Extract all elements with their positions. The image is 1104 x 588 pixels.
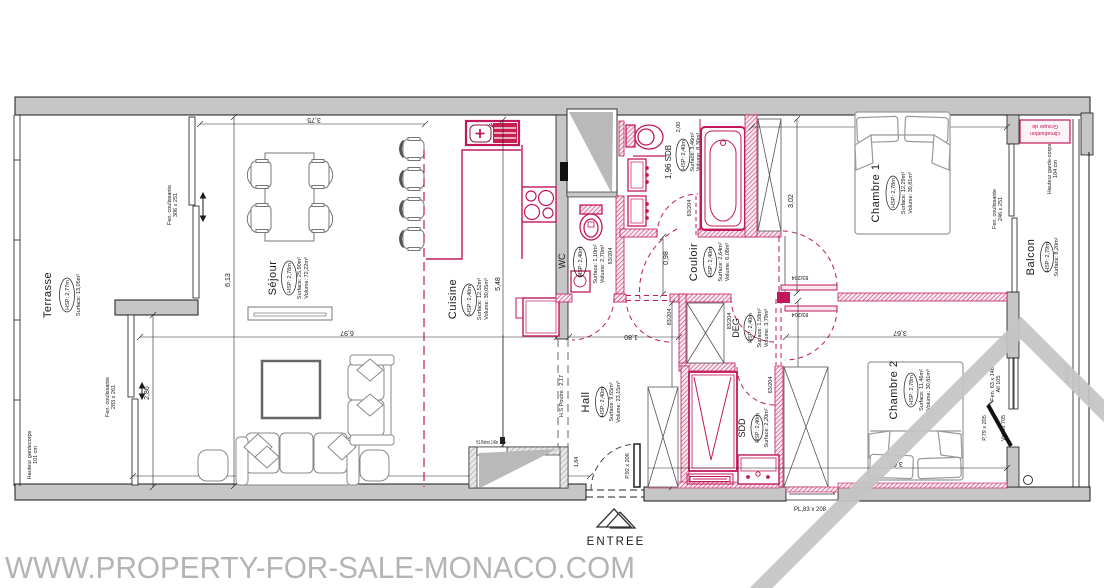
svg-text:3,75: 3,75 xyxy=(307,116,321,123)
svg-text:Groupe de: Groupe de xyxy=(1032,123,1058,129)
svg-text:P,79 x 205: P,79 x 205 xyxy=(982,415,988,441)
svg-text:Videm 705: Videm 705 xyxy=(1001,415,1007,441)
svg-text:Surface: 8,20m²: Surface: 8,20m² xyxy=(1054,237,1060,276)
svg-text:83/204: 83/204 xyxy=(792,274,809,280)
svg-text:3,02: 3,02 xyxy=(788,194,795,208)
svg-text:HSP: 2,40m: HSP: 2,40m xyxy=(467,285,473,315)
svg-text:Cuisine: Cuisine xyxy=(447,279,459,319)
svg-text:SDD: SDD xyxy=(737,418,747,438)
svg-text:HSP: 2,40m: HSP: 2,40m xyxy=(578,247,584,277)
svg-text:Volume: 72,22m³: Volume: 72,22m³ xyxy=(304,257,310,299)
svg-text:Surface: 2,20m²: Surface: 2,20m² xyxy=(764,408,770,447)
svg-text:HSP: 2,79m: HSP: 2,79m xyxy=(1045,242,1051,272)
svg-text:HSP: 2,40m: HSP: 2,40m xyxy=(681,140,687,170)
svg-text:Volume: 2,70m³: Volume: 2,70m³ xyxy=(600,245,606,284)
svg-text:Séjour: Séjour xyxy=(267,261,279,296)
svg-text:Balcon: Balcon xyxy=(1025,239,1037,276)
svg-text:HSP: 2,40m: HSP: 2,40m xyxy=(748,313,754,343)
svg-text:Chambre 1: Chambre 1 xyxy=(870,164,882,223)
svg-text:Chambre 2: Chambre 2 xyxy=(888,361,900,420)
svg-text:Surface: 11,46m²: Surface: 11,46m² xyxy=(919,369,925,411)
svg-text:1,80: 1,80 xyxy=(624,333,638,340)
svg-text:246 x 251: 246 x 251 xyxy=(998,197,1004,221)
svg-text:1,96 SDB: 1,96 SDB xyxy=(664,145,673,179)
svg-text:101 cm: 101 cm xyxy=(33,446,39,464)
svg-text:HSP: 2,78m: HSP: 2,78m xyxy=(891,178,897,208)
svg-text:Surface: 13,05m²: Surface: 13,05m² xyxy=(76,274,82,316)
svg-text:H.S.Plafond: 2,40m: H.S.Plafond: 2,40m xyxy=(476,440,498,446)
svg-text:104 cm: 104 cm xyxy=(1053,160,1059,178)
svg-text:All 105: All 105 xyxy=(996,376,1002,393)
svg-text:Surface: 1,10m²: Surface: 1,10m² xyxy=(593,244,599,283)
svg-text:Volume: 30,81m³: Volume: 30,81m³ xyxy=(926,369,932,411)
svg-text:0,98: 0,98 xyxy=(663,251,670,265)
svg-text:2,86: 2,86 xyxy=(144,386,151,400)
svg-text:83/204: 83/204 xyxy=(727,313,733,330)
svg-text:HSP: 2,40m: HSP: 2,40m xyxy=(755,413,761,443)
svg-text:63/204: 63/204 xyxy=(768,377,774,394)
svg-text:283 x 261: 283 x 261 xyxy=(111,385,117,409)
svg-text:83/204: 83/204 xyxy=(792,311,809,317)
svg-text:Terrasse: Terrasse xyxy=(42,272,54,318)
svg-text:HSP: 2,40m: HSP: 2,40m xyxy=(708,247,714,277)
svg-text:climatisation: climatisation xyxy=(1030,130,1060,136)
svg-text:HSP: 2,40m: HSP: 2,40m xyxy=(600,387,606,417)
svg-text:6,13: 6,13 xyxy=(225,273,232,287)
svg-text:H.S Poutre : 2,17: H.S Poutre : 2,17 xyxy=(559,375,565,417)
svg-text:1,84: 1,84 xyxy=(574,457,580,468)
svg-text:6,97: 6,97 xyxy=(340,329,354,336)
svg-text:63/204: 63/204 xyxy=(687,200,693,217)
svg-text:Surface: 12,29m²: Surface: 12,29m² xyxy=(901,172,907,214)
svg-text:WWW.PROPERTY-FOR-SALE-MONACO.C: WWW.PROPERTY-FOR-SALE-MONACO.COM xyxy=(5,550,635,585)
svg-text:Volume: 30,81m³: Volume: 30,81m³ xyxy=(908,172,914,214)
svg-text:HSP: 2,78m: HSP: 2,78m xyxy=(909,375,915,405)
svg-text:Volume: 23,15m³: Volume: 23,15m³ xyxy=(616,381,622,423)
svg-text:HSP: 2,78m: HSP: 2,78m xyxy=(287,263,293,293)
svg-text:Volume: 3,79m³: Volume: 3,79m³ xyxy=(764,309,770,348)
svg-text:PL,83 x 208: PL,83 x 208 xyxy=(794,507,827,513)
svg-text:WC: WC xyxy=(557,253,567,268)
svg-text:Surface: 9,65m²: Surface: 9,65m² xyxy=(609,382,615,421)
svg-text:ENTREE: ENTREE xyxy=(587,536,646,548)
svg-text:Hall: Hall xyxy=(580,392,592,413)
svg-text:63/204: 63/204 xyxy=(608,248,614,265)
svg-text:Surface: 1,58m²: Surface: 1,58m² xyxy=(757,308,763,347)
svg-text:Volume: 30,05m³: Volume: 30,05m³ xyxy=(484,278,490,320)
svg-text:HSP: 2,77m: HSP: 2,77m xyxy=(65,280,71,310)
svg-text:306 x 251: 306 x 251 xyxy=(173,193,179,217)
svg-text:Surface: 2,64m²: Surface: 2,64m² xyxy=(718,242,724,281)
svg-text:5,48: 5,48 xyxy=(495,277,502,291)
svg-text:Volume: 6,08m³: Volume: 6,08m³ xyxy=(725,243,731,282)
svg-text:Couloir: Couloir xyxy=(688,243,700,281)
svg-text:P,92 x 206: P,92 x 206 xyxy=(625,453,631,479)
svg-text:2,00: 2,00 xyxy=(676,122,682,133)
svg-text:Surface: 25,90m²: Surface: 25,90m² xyxy=(297,257,303,299)
svg-text:3,67: 3,67 xyxy=(893,329,907,336)
svg-text:Surface: 12,52m²: Surface: 12,52m² xyxy=(477,278,483,320)
